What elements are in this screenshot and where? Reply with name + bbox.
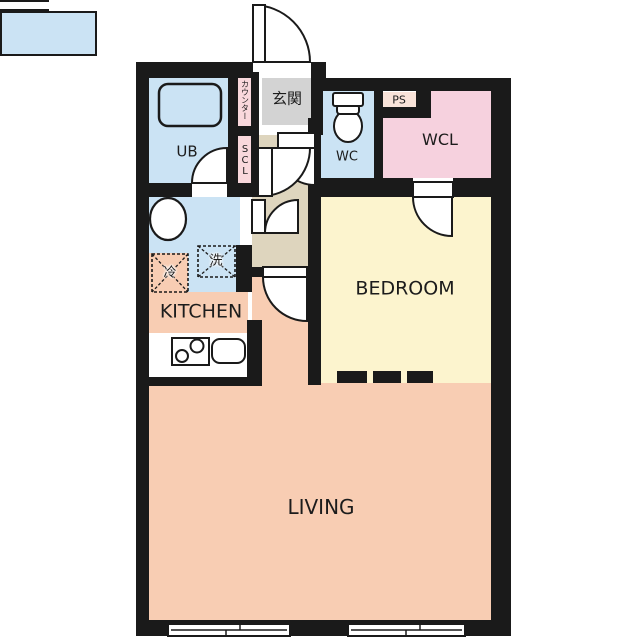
plan-graphics bbox=[0, 0, 640, 640]
floor-plan: UB カウンター SCL 玄関 WC PS WCL BEDROOM KITCHE… bbox=[0, 0, 640, 640]
ps-label: PS bbox=[392, 95, 406, 106]
counter-label: カウンター bbox=[238, 74, 251, 126]
toilet-icon bbox=[333, 93, 363, 142]
bedroom-label: BEDROOM bbox=[355, 280, 454, 299]
ldk-door-icon bbox=[263, 267, 307, 321]
living-label: LIVING bbox=[287, 497, 354, 517]
stove-icon bbox=[172, 338, 209, 365]
wcl-label: WCL bbox=[422, 132, 458, 148]
washroom-door-icon bbox=[252, 200, 298, 233]
window-icon bbox=[348, 624, 465, 636]
wc-label: WC bbox=[336, 151, 358, 164]
genkan-label: 玄関 bbox=[272, 92, 302, 107]
bathtub-icon bbox=[159, 84, 221, 126]
kitchen-sink-icon bbox=[212, 339, 245, 363]
washer-label: 洗 bbox=[209, 255, 222, 268]
fridge-label: 冷 bbox=[163, 267, 176, 280]
hall-door-2-icon bbox=[258, 148, 310, 196]
bedroom-door-icon bbox=[413, 182, 453, 236]
washbasin-icon bbox=[150, 198, 186, 240]
ub-label: UB bbox=[176, 145, 197, 160]
scl-label: SCL bbox=[238, 138, 251, 182]
entrance-door-icon bbox=[253, 5, 310, 62]
kitchen-label: KITCHEN bbox=[160, 303, 242, 322]
window-icon bbox=[168, 624, 290, 636]
